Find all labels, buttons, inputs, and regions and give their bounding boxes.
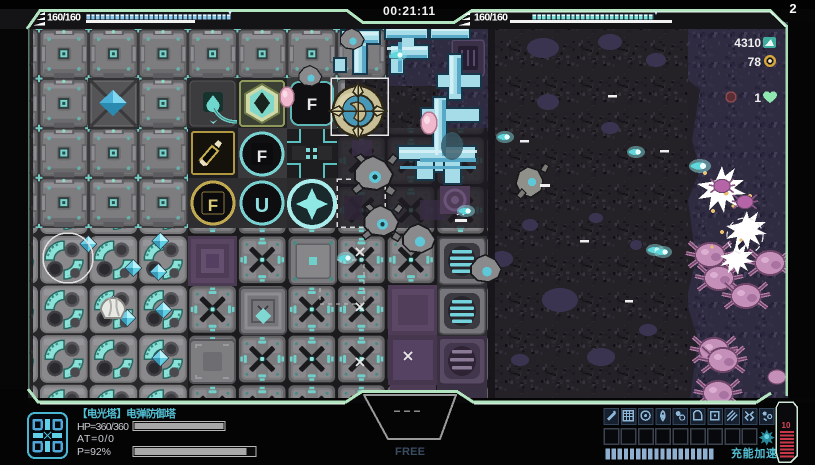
- svg-text:【电光塔】电弹防御塔: 【电光塔】电弹防御塔: [77, 407, 177, 420]
- svg-text:充能加速: 充能加速: [731, 446, 777, 460]
- svg-text:00:21:11: 00:21:11: [383, 4, 435, 18]
- svg-text:F: F: [257, 147, 267, 166]
- svg-text:FREE: FREE: [395, 446, 425, 458]
- svg-text:F: F: [307, 95, 317, 114]
- svg-text:P=92%: P=92%: [77, 446, 111, 458]
- svg-text:1: 1: [754, 91, 761, 105]
- svg-text:10: 10: [782, 421, 791, 430]
- svg-text:F: F: [208, 196, 218, 215]
- svg-text:78: 78: [748, 55, 762, 69]
- svg-text:4310: 4310: [734, 36, 761, 50]
- svg-text:HP=360/360: HP=360/360: [77, 421, 129, 433]
- svg-text:160/160: 160/160: [47, 12, 81, 24]
- svg-text:U: U: [255, 195, 269, 217]
- svg-text:160/160: 160/160: [474, 12, 508, 24]
- svg-text:2: 2: [789, 1, 796, 16]
- svg-text:AT=0/0: AT=0/0: [77, 433, 114, 445]
